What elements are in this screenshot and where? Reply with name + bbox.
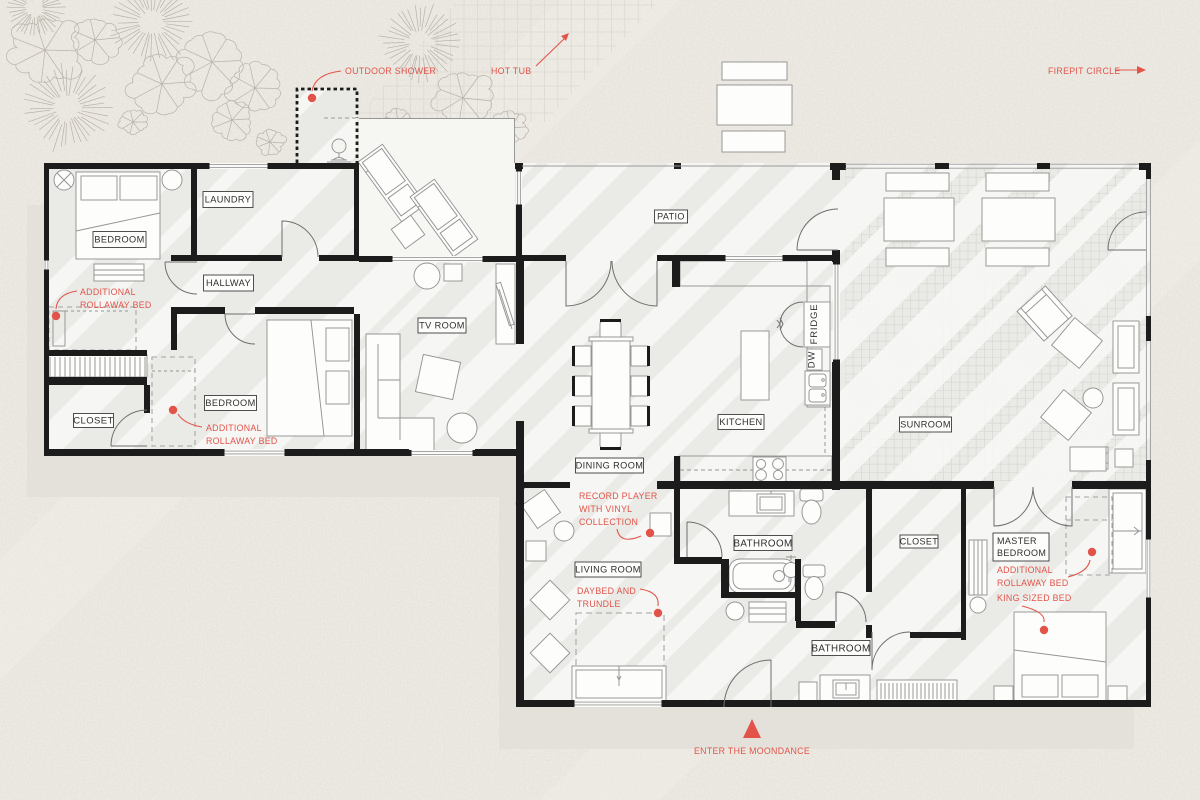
svg-text:BEDROOM: BEDROOM	[205, 398, 255, 408]
svg-text:SUNROOM: SUNROOM	[900, 420, 951, 430]
svg-text:CLOSET: CLOSET	[900, 537, 939, 547]
svg-text:TV ROOM: TV ROOM	[419, 321, 465, 331]
svg-text:OUTDOOR SHOWER: OUTDOOR SHOWER	[345, 66, 436, 76]
svg-text:ENTER THE MOONDANCE: ENTER THE MOONDANCE	[694, 746, 810, 756]
svg-text:PATIO: PATIO	[657, 212, 685, 222]
svg-text:BATHROOM: BATHROOM	[733, 538, 792, 549]
svg-text:FRIDGE: FRIDGE	[809, 304, 820, 345]
svg-text:DW: DW	[807, 351, 818, 368]
svg-text:KITCHEN: KITCHEN	[719, 417, 762, 427]
svg-text:TRUNDLE: TRUNDLE	[577, 599, 621, 609]
svg-text:WITH VINYL: WITH VINYL	[579, 504, 632, 514]
svg-text:ROLLAWAY BED: ROLLAWAY BED	[80, 300, 152, 310]
svg-text:ADDITIONAL: ADDITIONAL	[80, 287, 136, 297]
svg-text:MASTER: MASTER	[997, 536, 1037, 546]
svg-text:FIREPIT CIRCLE: FIREPIT CIRCLE	[1048, 66, 1120, 76]
svg-text:DAYBED AND: DAYBED AND	[577, 586, 636, 596]
svg-text:HOT TUB: HOT TUB	[491, 66, 531, 76]
svg-text:DINING ROOM: DINING ROOM	[576, 461, 644, 471]
svg-text:LAUNDRY: LAUNDRY	[205, 195, 252, 205]
svg-text:RECORD PLAYER: RECORD PLAYER	[579, 491, 658, 501]
svg-text:ROLLAWAY BED: ROLLAWAY BED	[206, 436, 278, 446]
svg-text:ADDITIONAL: ADDITIONAL	[997, 565, 1053, 575]
svg-text:ROLLAWAY BED: ROLLAWAY BED	[997, 578, 1069, 588]
svg-text:CLOSET: CLOSET	[73, 416, 113, 427]
svg-text:BEDROOM: BEDROOM	[94, 235, 144, 245]
svg-text:KING SIZED BED: KING SIZED BED	[997, 593, 1072, 603]
svg-text:LIVING ROOM: LIVING ROOM	[575, 565, 641, 575]
svg-text:ADDITIONAL: ADDITIONAL	[206, 423, 262, 433]
svg-text:BEDROOM: BEDROOM	[997, 548, 1046, 558]
svg-text:BATHROOM: BATHROOM	[811, 643, 870, 654]
svg-text:HALLWAY: HALLWAY	[206, 278, 251, 288]
svg-text:COLLECTION: COLLECTION	[579, 517, 638, 527]
